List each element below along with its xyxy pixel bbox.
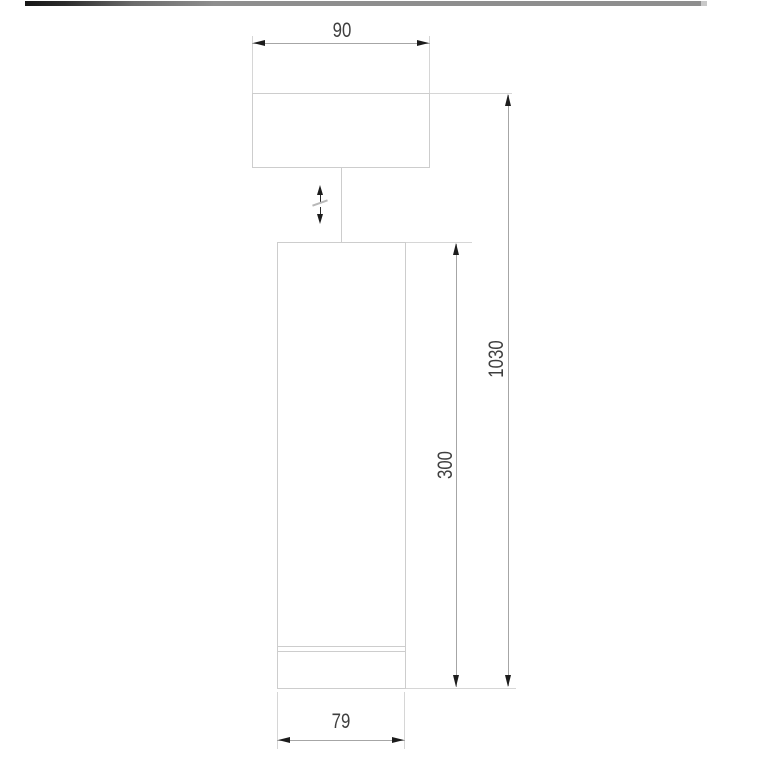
drawing-canvas: 90 1030 300 79 — [0, 0, 777, 777]
dimension-line — [277, 740, 405, 741]
dim-arrow-up-icon — [453, 243, 459, 255]
canopy-outline — [252, 93, 430, 168]
dim-label-body-height: 300 — [434, 451, 458, 479]
extension-line-top — [430, 93, 512, 94]
dim-arrow-down-icon — [453, 675, 459, 687]
dimension-line — [508, 95, 509, 686]
extension-line-right — [429, 36, 430, 93]
lamp-body-outline — [277, 242, 406, 689]
dim-arrow-down-icon — [505, 675, 511, 687]
body-ring-line-upper — [278, 646, 405, 647]
suspension-stem-line — [341, 168, 342, 242]
dim-arrow-left-icon — [278, 737, 290, 743]
body-ring-line-lower — [278, 651, 405, 652]
dim-label-canopy-width: 90 — [310, 19, 374, 43]
dim-arrow-right-icon — [392, 737, 404, 743]
adjust-arrow-shaft-bottom — [320, 207, 321, 214]
extension-line-top — [406, 242, 472, 243]
dim-arrow-left-icon — [253, 40, 265, 46]
top-gradient-bar — [25, 1, 701, 6]
top-gradient-bar-end-cap — [701, 1, 707, 6]
dimension-line — [252, 43, 430, 44]
adjust-arrow-down-icon — [317, 214, 323, 224]
dim-label-body-diameter: 79 — [309, 710, 373, 734]
dim-arrow-up-icon — [505, 94, 511, 106]
extension-line-bottom — [406, 688, 516, 689]
dim-arrow-right-icon — [417, 40, 429, 46]
dim-label-overall-height: 1030 — [485, 340, 509, 377]
adjust-arrow-up-icon — [317, 185, 323, 195]
